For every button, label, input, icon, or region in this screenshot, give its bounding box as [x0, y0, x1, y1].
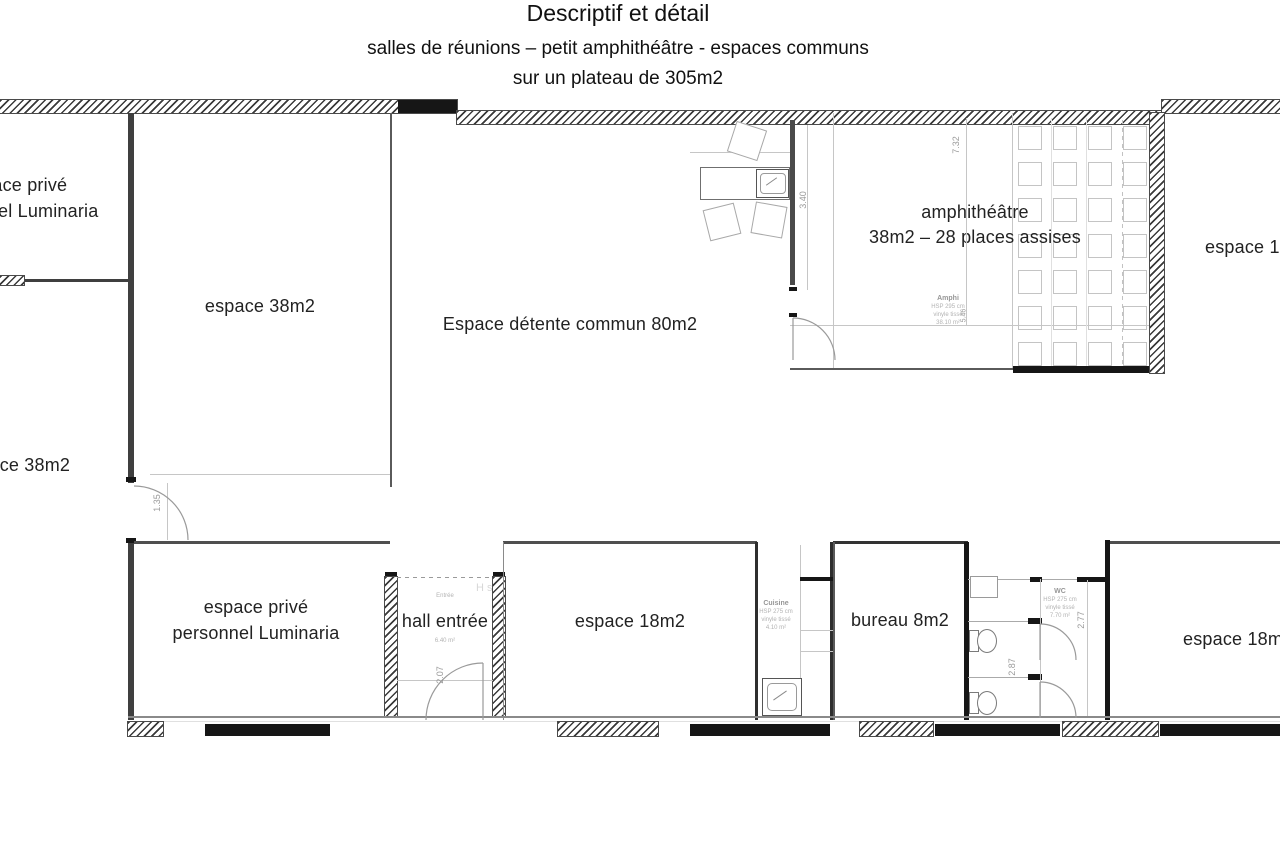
- sink-icon: [760, 173, 786, 194]
- amphi-annotation-area: 38.10 m²: [904, 319, 992, 327]
- dimension-135: 1.35: [152, 494, 162, 512]
- cuisine-top-wall: [800, 577, 833, 581]
- facade-hatch: [860, 722, 933, 736]
- amphi-seat: [1018, 162, 1042, 186]
- amphi-seat: [1123, 162, 1147, 186]
- facade-hatch: [128, 722, 163, 736]
- wall-private-bottom-top: [134, 541, 390, 544]
- line-espace38-bottom: [150, 474, 390, 475]
- amphi-seat: [1123, 306, 1147, 330]
- amphi-seat: [1053, 342, 1077, 366]
- wall-top-dark-segment: [398, 100, 457, 113]
- amphi-seat: [1123, 126, 1147, 150]
- door-frame-tick: [789, 287, 797, 291]
- page-subtitle-1: salles de réunions – petit amphithéâtre …: [0, 38, 1236, 60]
- hall-annotation-area: 6.40 m²: [398, 637, 492, 645]
- amphi-seat: [1088, 306, 1112, 330]
- facade-hatch: [1063, 722, 1158, 736]
- floor-plan-page: { "title": { "line1": "Descriptif et dét…: [0, 0, 1280, 850]
- amphi-seat: [1088, 162, 1112, 186]
- amphi-annotation: Amphi HSP 295 cm vinyle tissé 38.10 m²: [904, 295, 992, 327]
- chair-square: [703, 203, 742, 242]
- cuisine-annotation: Cuisine HSP 275 cm vinyle tissé 4.10 m²: [752, 600, 800, 632]
- chair-square: [750, 201, 787, 238]
- cuisine-annotation-area: 4.10 m²: [752, 624, 800, 632]
- cuisine-shelf-1: [800, 630, 833, 631]
- cuisine-sink-icon: [767, 683, 797, 711]
- room-label-private-bottom: espace privé: [156, 597, 356, 618]
- amphi-seat: [1018, 342, 1042, 366]
- amphi-annotation-name: Amphi: [904, 295, 992, 303]
- cuisine-shelf-2: [800, 651, 833, 652]
- amphi-seat: [1123, 234, 1147, 258]
- dimension-287: 2.87: [1007, 658, 1017, 676]
- wc-top-wall-2: [1077, 577, 1108, 582]
- wall-amphi-bottom-thin: [790, 368, 1013, 370]
- cuisine-annotation-name: Cuisine: [752, 600, 800, 608]
- wall-amphi-left: [790, 120, 795, 285]
- room-label-espace-prive-top-2: personnel Luminaria: [0, 201, 115, 222]
- page-title: Descriptif et détail: [0, 0, 1236, 27]
- door-arc: [1040, 682, 1076, 718]
- dim-line-732: [966, 118, 967, 325]
- facade-window-band: [205, 724, 330, 736]
- door-frame-tick: [126, 477, 136, 482]
- amphi-seat: [1088, 270, 1112, 294]
- toilet-icon: [977, 629, 997, 653]
- amphi-seat: [1088, 126, 1112, 150]
- facade-window-band: [935, 724, 1060, 736]
- room-label-espace18-top-right: espace 18m2: [1205, 237, 1280, 258]
- door-arc: [1040, 624, 1076, 660]
- wc-annotation-name: WC: [1032, 588, 1088, 596]
- room-label-amphi-2: 38m2 – 28 places assises: [845, 227, 1105, 248]
- room-label-hall: hall entrée: [393, 611, 497, 632]
- room-label-espace18-bottom-right: espace 18m2: [1183, 629, 1280, 650]
- dimension-340: 3.40: [798, 191, 808, 209]
- amphi-seat: [1123, 198, 1147, 222]
- amphi-seat: [1053, 270, 1077, 294]
- amphi-seat: [1053, 306, 1077, 330]
- dim-line-207: [397, 680, 493, 681]
- amphi-seat: [1018, 270, 1042, 294]
- hall-annotation-sub: Entrée: [398, 592, 492, 600]
- facade-window-band: [690, 724, 830, 736]
- wall-top-center: [457, 111, 1162, 124]
- facade-line: [128, 716, 1280, 718]
- cuisine-annotation-finish: vinyle tissé: [752, 616, 800, 624]
- wall-bureau-top: [833, 541, 968, 544]
- dim-line-277: [1087, 580, 1088, 716]
- door-frame-tick: [789, 313, 797, 317]
- amphi-seat: [1123, 342, 1147, 366]
- wall-right-room-left: [1105, 540, 1110, 720]
- wall-topleft-room-hatch: [0, 276, 24, 285]
- wall-amphi-bottom: [1013, 366, 1163, 373]
- room-label-detente: Espace détente commun 80m2: [440, 314, 700, 335]
- page-subtitle-2: sur un plateau de 305m2: [0, 68, 1236, 90]
- wall-left-vertical-upper: [128, 113, 134, 483]
- dimension-546: 5.46: [960, 309, 967, 323]
- wall-top-left: [0, 100, 457, 113]
- room-label-espace18-center: espace 18m2: [520, 611, 740, 632]
- amphi-seat: [1018, 306, 1042, 330]
- hall-threshold-dashed: [397, 577, 493, 578]
- facade-hatch: [558, 722, 658, 736]
- room-label-espace38-left: espace 38m2: [0, 455, 90, 476]
- room-label-amphi: amphithéâtre: [845, 202, 1105, 223]
- amphi-seat: [1088, 342, 1112, 366]
- wall-espace38-right: [390, 113, 392, 487]
- amphi-line-v1: [833, 113, 834, 369]
- dimension-207: 2.07: [435, 666, 445, 684]
- room-label-espace38-top: espace 38m2: [150, 296, 370, 317]
- amphi-seat: [1053, 162, 1077, 186]
- dimension-732: 7.32: [951, 136, 961, 154]
- room-label-bureau: bureau 8m2: [835, 610, 965, 631]
- amphi-seat: [1123, 270, 1147, 294]
- wall-top-right: [1162, 100, 1280, 113]
- facade-window-band: [1160, 724, 1280, 736]
- amphi-annotation-finish: vinyle tissé: [904, 311, 992, 319]
- wc-sink-icon: [970, 576, 998, 598]
- dim-line-135: [167, 483, 168, 540]
- cuisine-annotation-hsp: HSP 275 cm: [752, 608, 800, 616]
- wall-hall-left: [385, 577, 397, 717]
- amphi-seat: [1053, 126, 1077, 150]
- chair-square: [727, 121, 767, 161]
- room-label-espace-prive-top: espace privé: [0, 175, 115, 196]
- amphi-annotation-hsp: HSP 295 cm: [904, 303, 992, 311]
- wall-left-vertical-lower: [128, 540, 134, 720]
- wall-espace18c-left: [503, 542, 504, 720]
- wall-espace18c-top: [503, 541, 757, 544]
- toilet-icon: [977, 691, 997, 715]
- dimension-277: 2.77: [1076, 611, 1086, 629]
- room-label-private-bottom-2: personnel Luminaria: [156, 623, 356, 644]
- wall-bureau-left: [833, 542, 835, 720]
- wc-annotation-hsp: HSP 275 cm: [1032, 596, 1088, 604]
- wall-amphi-right: [1150, 113, 1164, 373]
- amphi-seat: [1018, 126, 1042, 150]
- wall-right-room-top: [1105, 541, 1280, 544]
